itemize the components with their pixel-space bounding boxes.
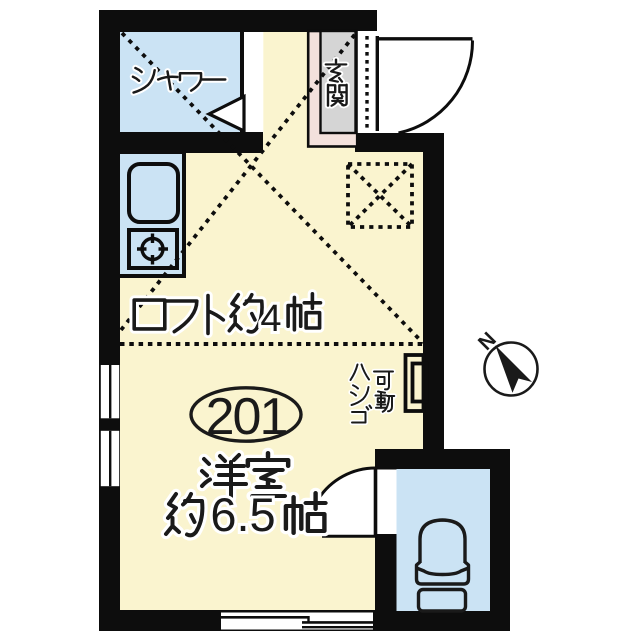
svg-text:201: 201 — [206, 388, 287, 446]
svg-text:4: 4 — [260, 298, 281, 340]
svg-text:6.5: 6.5 — [210, 488, 275, 541]
